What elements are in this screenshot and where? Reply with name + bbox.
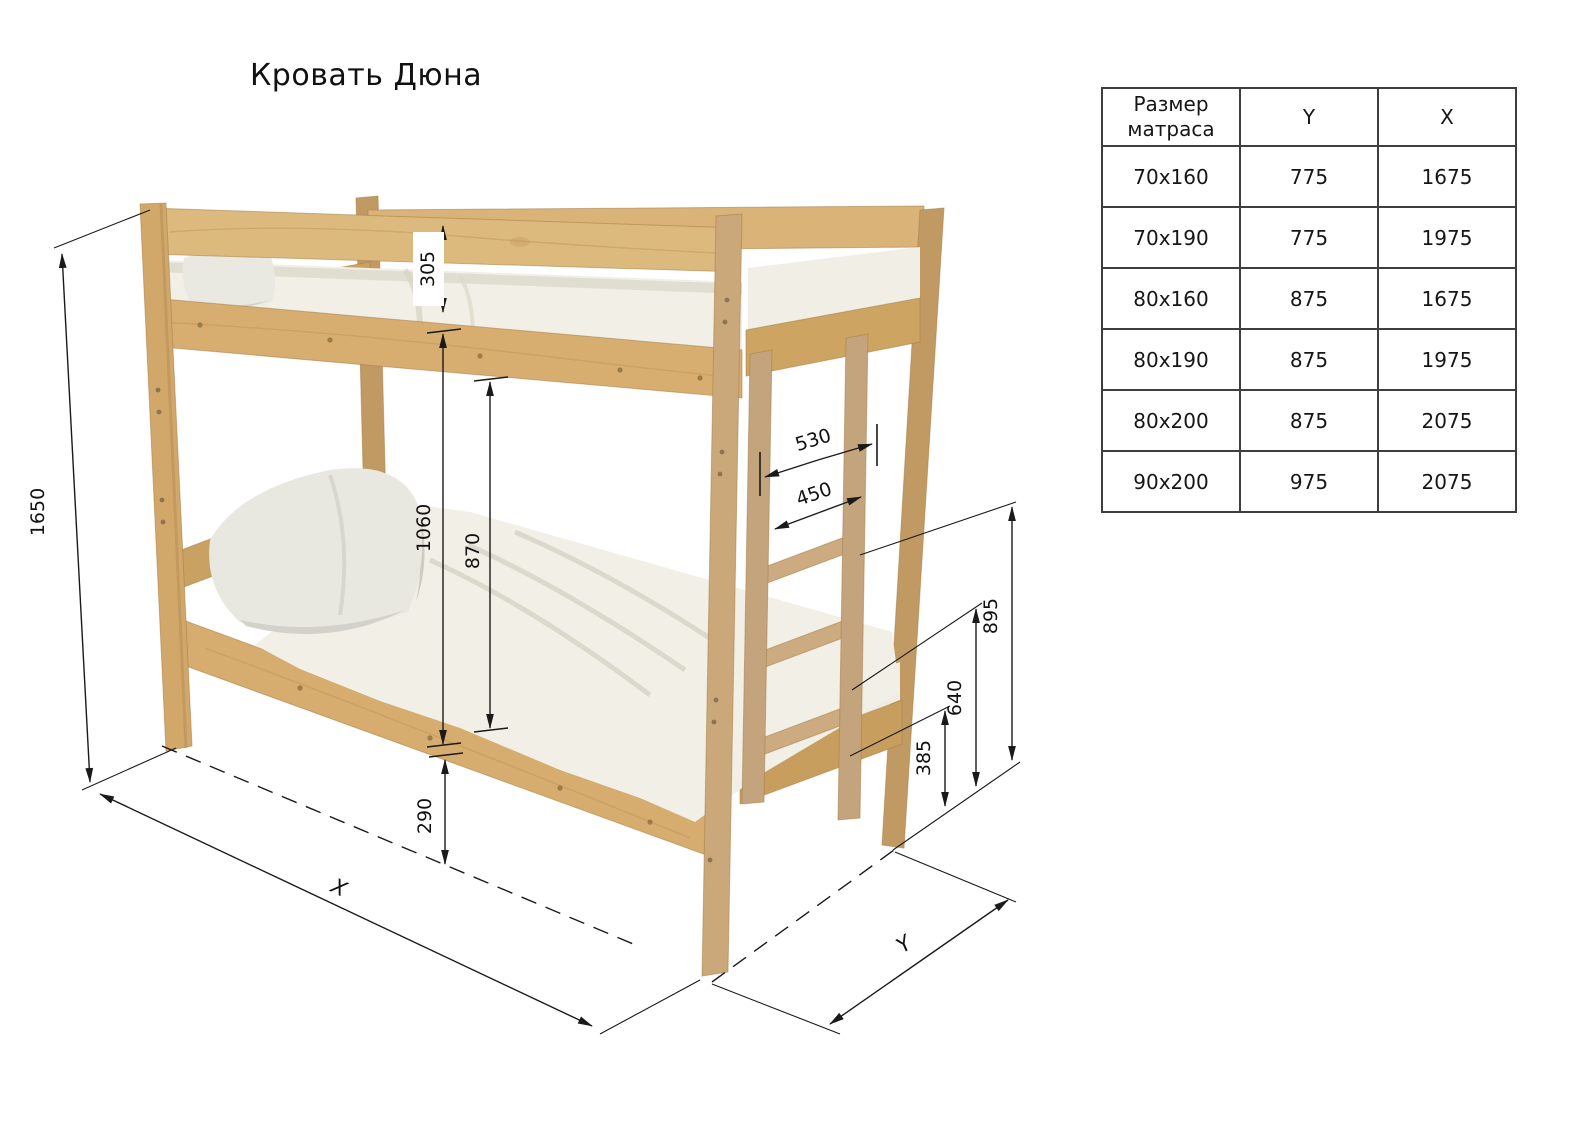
cell-x: 1975 xyxy=(1378,329,1516,390)
table-row: 80x160 875 1675 xyxy=(1102,268,1516,329)
dim-label-axis-x: X xyxy=(326,873,351,902)
table-row: 80x200 875 2075 xyxy=(1102,390,1516,451)
lower-pillow xyxy=(209,468,422,630)
cell-x: 1975 xyxy=(1378,207,1516,268)
table-body: 70x160 775 1675 70x190 775 1975 80x160 8… xyxy=(1102,146,1516,512)
cell-y: 775 xyxy=(1240,207,1378,268)
extension-line xyxy=(54,210,150,248)
cell-y: 775 xyxy=(1240,146,1378,207)
cell-size: 80x190 xyxy=(1102,329,1240,390)
extension-line xyxy=(895,852,1016,902)
table-row: 70x160 775 1675 xyxy=(1102,146,1516,207)
table-header-row: Размер матраса Y X xyxy=(1102,88,1516,146)
extension-line xyxy=(712,984,840,1034)
dim-label-ladder-inner: 450 xyxy=(793,478,834,511)
wood-knot xyxy=(510,237,530,247)
extension-line xyxy=(82,748,176,790)
table-header-x: X xyxy=(1378,88,1516,146)
page-canvas: Кровать Дюна xyxy=(0,0,1587,1122)
table-row: 90x200 975 2075 xyxy=(1102,451,1516,512)
cell-x: 2075 xyxy=(1378,451,1516,512)
dim-label-lower-frame: 290 xyxy=(414,798,436,834)
dim-overall-height: 1650 xyxy=(27,254,90,782)
cell-x: 1675 xyxy=(1378,146,1516,207)
extension-line xyxy=(600,980,700,1034)
dim-label-under-upper: 870 xyxy=(462,533,484,569)
dim-rung-low: 385 xyxy=(913,711,945,806)
table-head: Размер матраса Y X xyxy=(1102,88,1516,146)
dim-label-axis-y: Y xyxy=(892,929,918,957)
dim-label-rung-top: 895 xyxy=(980,598,1002,634)
dim-depth-y: Y xyxy=(830,900,1008,1024)
table-header-y: Y xyxy=(1240,88,1378,146)
dim-label-rung-mid: 640 xyxy=(944,680,966,716)
cell-size: 70x160 xyxy=(1102,146,1240,207)
cell-y: 975 xyxy=(1240,451,1378,512)
table-row: 70x190 775 1975 xyxy=(1102,207,1516,268)
dim-rung-top: 895 xyxy=(980,507,1012,760)
floor-line-y xyxy=(712,850,894,982)
cell-y: 875 xyxy=(1240,329,1378,390)
bunk-bed-illustration xyxy=(140,196,944,976)
cell-y: 875 xyxy=(1240,268,1378,329)
dim-label-guard-height: 305 xyxy=(417,251,439,287)
cell-x: 1675 xyxy=(1378,268,1516,329)
table-row: 80x190 875 1975 xyxy=(1102,329,1516,390)
cell-size: 80x200 xyxy=(1102,390,1240,451)
dim-label-upper-clearance: 1060 xyxy=(413,504,435,552)
ladder-rung-1 xyxy=(762,535,850,585)
dim-rung-mid: 640 xyxy=(944,609,976,786)
dim-length-x: X xyxy=(100,794,592,1026)
dim-label-rung-low: 385 xyxy=(913,740,935,776)
dim-guard-height: 305 xyxy=(413,226,444,312)
cell-x: 2075 xyxy=(1378,390,1516,451)
dim-label-overall-height: 1650 xyxy=(27,488,49,536)
cell-size: 70x190 xyxy=(1102,207,1240,268)
mattress-size-table: Размер матраса Y X 70x160 775 1675 70x19… xyxy=(1101,87,1517,513)
cell-size: 90x200 xyxy=(1102,451,1240,512)
dim-lower-frame: 290 xyxy=(414,753,463,864)
dim-label-ladder-outer: 530 xyxy=(793,424,834,456)
cell-y: 875 xyxy=(1240,390,1378,451)
extension-line xyxy=(860,502,1016,555)
cell-size: 80x160 xyxy=(1102,268,1240,329)
table-header-size: Размер матраса xyxy=(1102,88,1240,146)
